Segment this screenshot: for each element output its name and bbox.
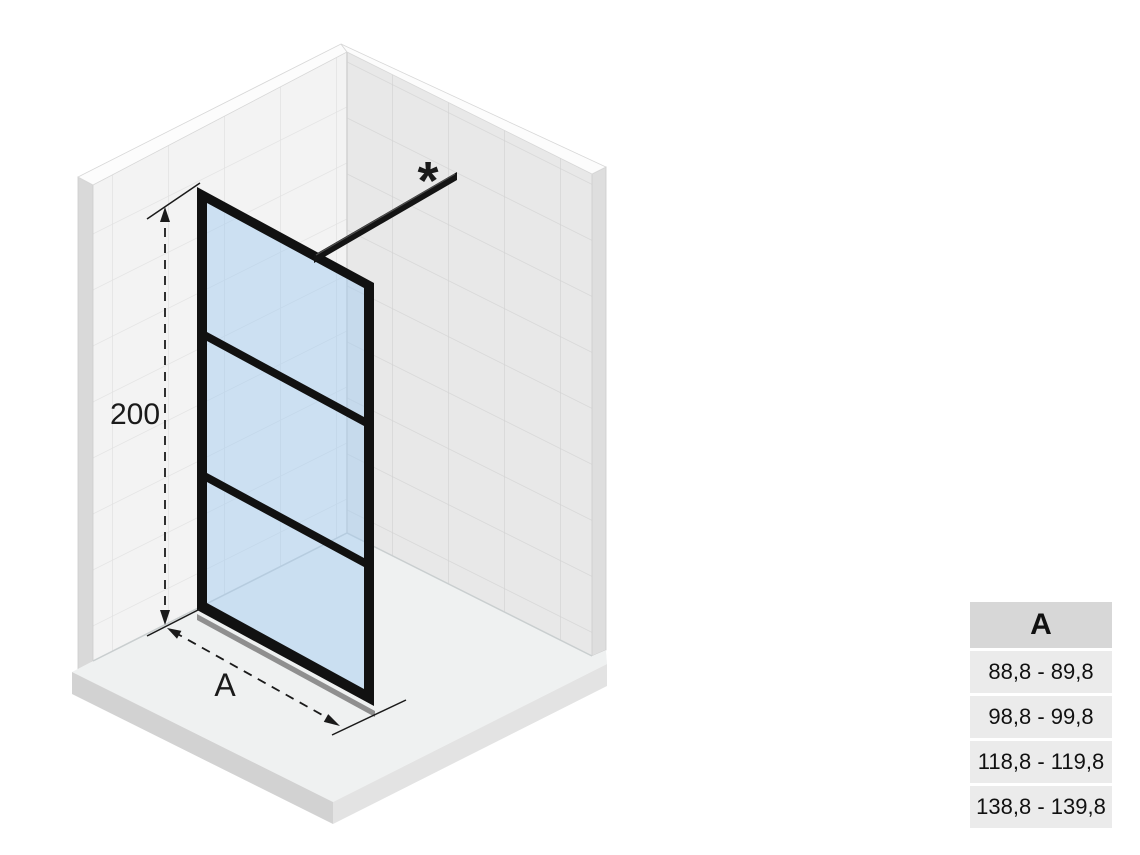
size-table-row: 118,8 - 119,8 [970, 741, 1112, 783]
shower-enclosure-diagram: * 200 A [0, 0, 1140, 855]
size-table-header: A [970, 602, 1112, 648]
height-dimension-label: 200 [110, 398, 160, 431]
size-table-row: 88,8 - 89,8 [970, 651, 1112, 693]
size-table: A 88,8 - 89,8 98,8 - 99,8 118,8 - 119,8 … [970, 602, 1112, 828]
right-wall-side-edge [592, 167, 606, 656]
width-dimension-label: A [214, 667, 236, 703]
left-wall-side-edge [78, 177, 93, 672]
footnote-asterisk: * [417, 151, 438, 211]
size-table-row: 138,8 - 139,8 [970, 786, 1112, 828]
size-table-row: 98,8 - 99,8 [970, 696, 1112, 738]
